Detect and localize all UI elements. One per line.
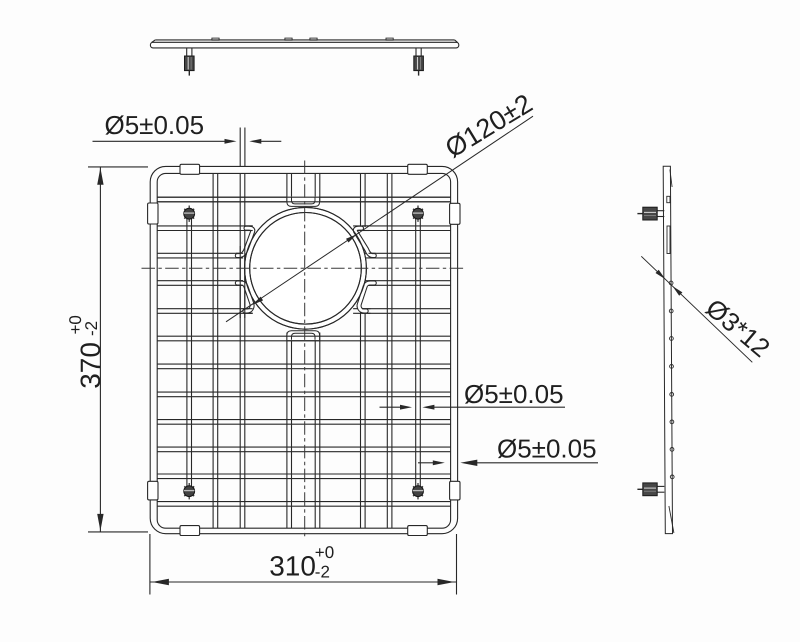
svg-text:Ø5±0.05: Ø5±0.05 xyxy=(105,110,205,140)
svg-text:Ø5±0.05: Ø5±0.05 xyxy=(464,379,564,409)
svg-text:-2: -2 xyxy=(82,321,101,336)
svg-text:+0: +0 xyxy=(315,543,334,562)
svg-text:Ø5±0.05: Ø5±0.05 xyxy=(497,433,597,463)
svg-text:310: 310 xyxy=(269,551,316,582)
svg-text:-2: -2 xyxy=(315,563,330,582)
svg-text:370: 370 xyxy=(75,342,106,389)
